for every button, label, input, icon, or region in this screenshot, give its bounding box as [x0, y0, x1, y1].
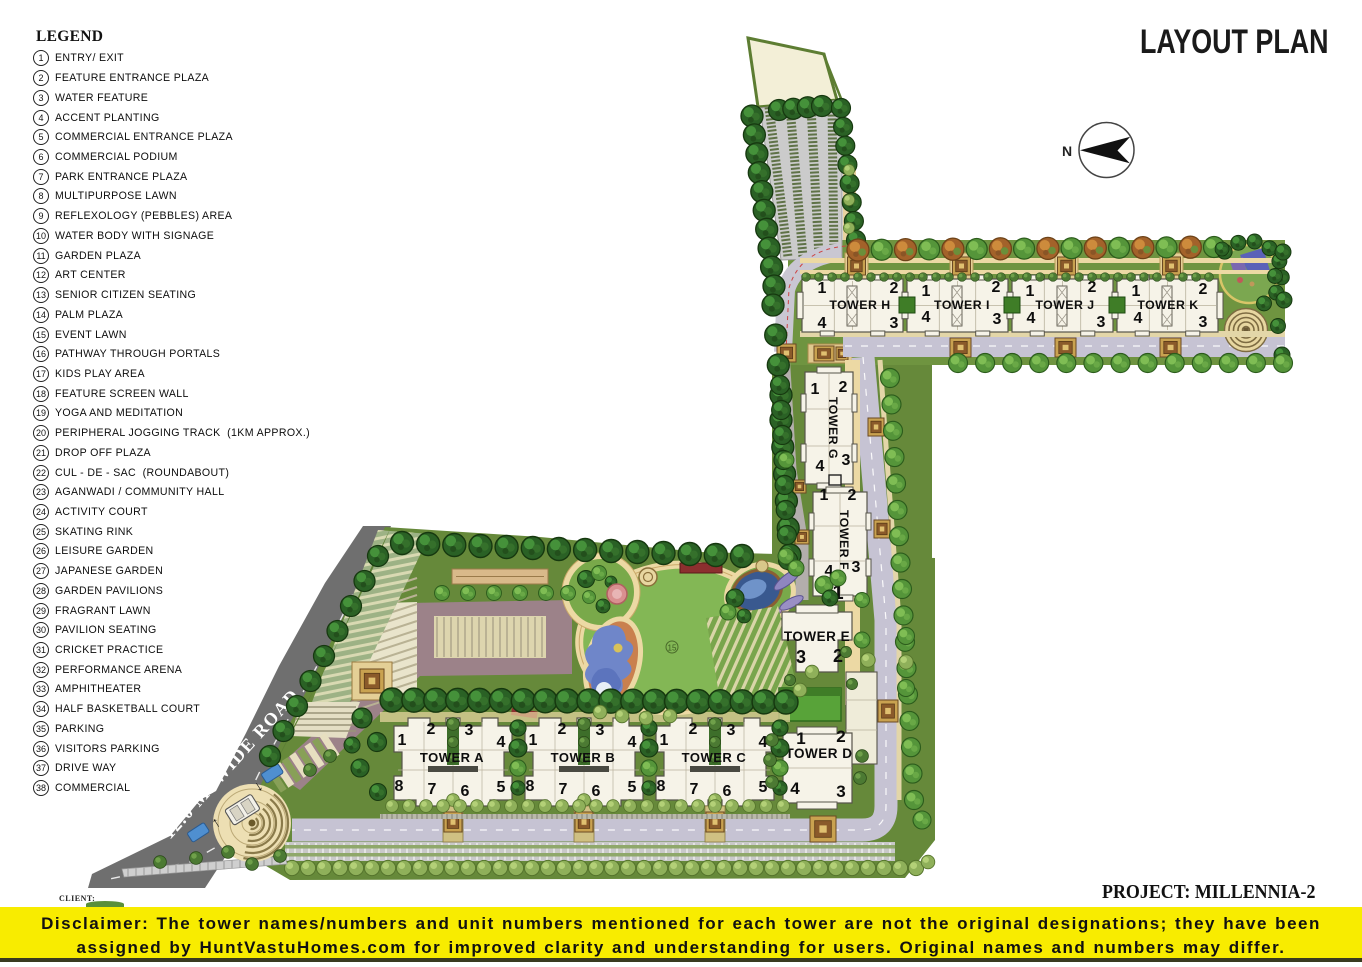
svg-text:TOWER I: TOWER I — [934, 298, 990, 312]
svg-text:1: 1 — [820, 487, 829, 504]
svg-text:1: 1 — [811, 381, 820, 398]
svg-text:1: 1 — [922, 283, 931, 300]
svg-text:1: 1 — [660, 732, 669, 749]
svg-text:2: 2 — [890, 280, 899, 297]
svg-text:TOWER G: TOWER G — [826, 397, 840, 459]
svg-text:TOWER B: TOWER B — [551, 750, 616, 765]
svg-text:6: 6 — [461, 783, 470, 800]
svg-text:4: 4 — [816, 458, 825, 475]
svg-text:1: 1 — [818, 280, 827, 297]
svg-text:6: 6 — [723, 783, 732, 800]
svg-text:3: 3 — [993, 311, 1002, 328]
svg-text:7: 7 — [559, 781, 568, 798]
svg-text:1: 1 — [1026, 283, 1035, 300]
svg-text:15: 15 — [668, 644, 677, 653]
svg-text:TOWER J: TOWER J — [1035, 298, 1094, 312]
svg-text:4: 4 — [790, 779, 800, 798]
svg-text:4: 4 — [818, 315, 827, 332]
svg-text:8: 8 — [526, 778, 535, 795]
svg-text:2: 2 — [848, 487, 857, 504]
svg-text:3: 3 — [1097, 314, 1106, 331]
svg-text:6: 6 — [592, 783, 601, 800]
svg-text:2: 2 — [992, 279, 1001, 296]
svg-text:4: 4 — [922, 309, 931, 326]
svg-text:2: 2 — [1199, 281, 1208, 298]
svg-text:4: 4 — [628, 734, 637, 751]
svg-text:4: 4 — [1027, 310, 1036, 327]
svg-text:3: 3 — [1199, 314, 1208, 331]
svg-text:1: 1 — [529, 732, 538, 749]
svg-text:TOWER C: TOWER C — [682, 750, 747, 765]
svg-text:2: 2 — [427, 721, 436, 738]
svg-text:TOWER K: TOWER K — [1137, 298, 1198, 312]
svg-text:3: 3 — [890, 315, 899, 332]
svg-text:5: 5 — [497, 779, 506, 796]
svg-text:7: 7 — [690, 781, 699, 798]
svg-text:N: N — [1062, 143, 1072, 159]
svg-text:TOWER E: TOWER E — [784, 629, 850, 644]
svg-text:3: 3 — [796, 647, 806, 667]
svg-text:TOWER F: TOWER F — [837, 510, 851, 570]
svg-text:1: 1 — [796, 729, 805, 748]
svg-text:2: 2 — [558, 721, 567, 738]
svg-text:TOWER H: TOWER H — [829, 298, 890, 312]
svg-text:3: 3 — [465, 722, 474, 739]
svg-text:2: 2 — [839, 379, 848, 396]
svg-text:3: 3 — [842, 452, 851, 469]
svg-text:4: 4 — [1134, 310, 1143, 327]
svg-text:3: 3 — [852, 559, 861, 576]
svg-text:3: 3 — [596, 722, 605, 739]
svg-text:7: 7 — [428, 781, 437, 798]
svg-text:1: 1 — [1132, 283, 1141, 300]
svg-text:8: 8 — [657, 778, 666, 795]
svg-text:TOWER D: TOWER D — [786, 746, 853, 761]
svg-text:3: 3 — [727, 722, 736, 739]
svg-text:2: 2 — [836, 727, 845, 746]
svg-text:4: 4 — [497, 734, 506, 751]
svg-text:5: 5 — [628, 779, 637, 796]
svg-text:3: 3 — [836, 782, 845, 801]
svg-text:2: 2 — [689, 721, 698, 738]
svg-text:TOWER A: TOWER A — [420, 750, 484, 765]
